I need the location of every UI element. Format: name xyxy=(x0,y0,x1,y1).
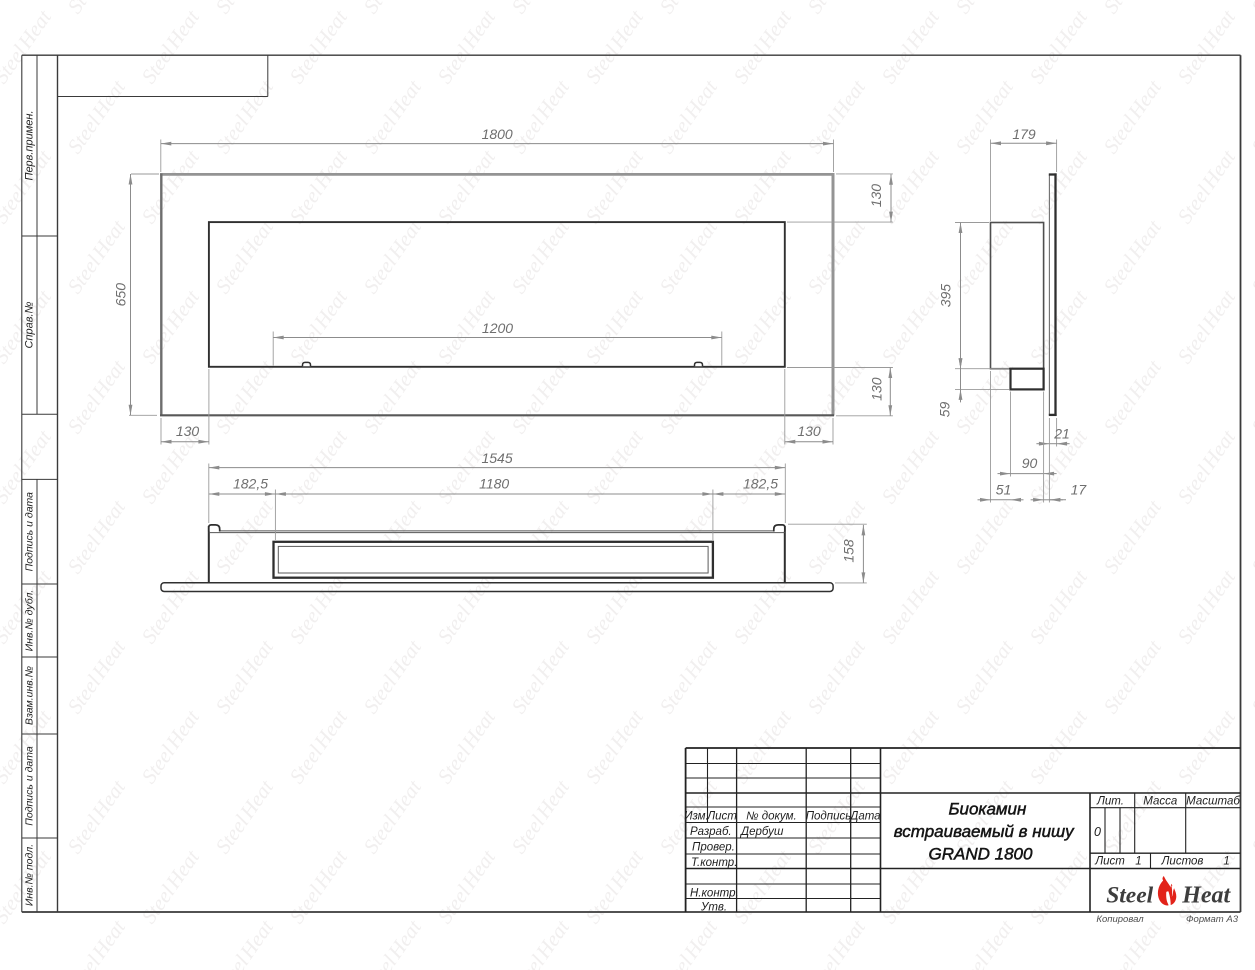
svg-text:Перв.примен.: Перв.примен. xyxy=(24,110,36,180)
svg-text:21: 21 xyxy=(1053,426,1070,442)
svg-text:Дата: Дата xyxy=(848,811,880,823)
svg-text:Н.контр.: Н.контр. xyxy=(690,888,739,900)
svg-text:Подпись и дата: Подпись и дата xyxy=(24,746,36,826)
svg-text:130: 130 xyxy=(868,377,884,401)
svg-text:1545: 1545 xyxy=(481,450,512,466)
svg-text:1: 1 xyxy=(1223,856,1229,868)
svg-text:Лист: Лист xyxy=(706,811,737,823)
svg-text:Heat: Heat xyxy=(1181,883,1231,909)
svg-text:Дербуш: Дербуш xyxy=(739,826,784,838)
svg-text:встраиваемый в нишу: встраиваемый в нишу xyxy=(894,822,1075,841)
svg-text:Масштаб: Масштаб xyxy=(1186,796,1240,808)
svg-text:Формат А3: Формат А3 xyxy=(1186,914,1239,925)
svg-text:Утв.: Утв. xyxy=(700,902,727,914)
svg-text:130: 130 xyxy=(176,423,200,439)
svg-text:Т.контр.: Т.контр. xyxy=(691,857,737,869)
svg-text:17: 17 xyxy=(1071,482,1088,498)
svg-text:130: 130 xyxy=(797,423,821,439)
svg-text:Справ.№: Справ.№ xyxy=(24,301,36,348)
svg-text:Инв.№ дубл.: Инв.№ дубл. xyxy=(24,590,36,652)
svg-text:Steel: Steel xyxy=(1106,883,1153,909)
svg-text:Масса: Масса xyxy=(1143,796,1177,808)
svg-text:Копировал: Копировал xyxy=(1096,914,1144,925)
svg-text:182,5: 182,5 xyxy=(743,476,778,492)
svg-text:130: 130 xyxy=(868,184,884,208)
svg-text:650: 650 xyxy=(113,283,129,307)
svg-text:90: 90 xyxy=(1022,455,1038,471)
svg-text:Инв.№ подл.: Инв.№ подл. xyxy=(24,844,36,906)
svg-text:Подпись: Подпись xyxy=(806,811,852,823)
svg-text:Лист: Лист xyxy=(1094,856,1125,868)
svg-text:51: 51 xyxy=(996,482,1012,498)
svg-text:Лит.: Лит. xyxy=(1096,796,1124,808)
svg-text:GRAND 1800: GRAND 1800 xyxy=(929,845,1033,864)
svg-text:Провер.: Провер. xyxy=(692,842,735,854)
svg-text:182,5: 182,5 xyxy=(233,476,268,492)
svg-text:179: 179 xyxy=(1012,126,1036,142)
svg-text:395: 395 xyxy=(938,284,954,308)
svg-text:158: 158 xyxy=(841,539,857,563)
svg-text:1800: 1800 xyxy=(482,126,513,142)
svg-text:1200: 1200 xyxy=(482,320,513,336)
svg-text:1180: 1180 xyxy=(479,476,509,492)
svg-text:1: 1 xyxy=(1135,856,1141,868)
svg-text:Разраб.: Разраб. xyxy=(690,826,732,838)
svg-text:59: 59 xyxy=(937,402,953,418)
svg-text:Взам.инв.№: Взам.инв.№ xyxy=(24,666,36,725)
svg-text:0: 0 xyxy=(1094,825,1101,839)
svg-text:Подпись и дата: Подпись и дата xyxy=(24,492,36,572)
svg-text:№ докум.: № докум. xyxy=(746,811,797,823)
svg-text:Изм.: Изм. xyxy=(684,811,709,823)
svg-text:Биокамин: Биокамин xyxy=(948,800,1027,819)
svg-text:Листов: Листов xyxy=(1161,856,1204,868)
